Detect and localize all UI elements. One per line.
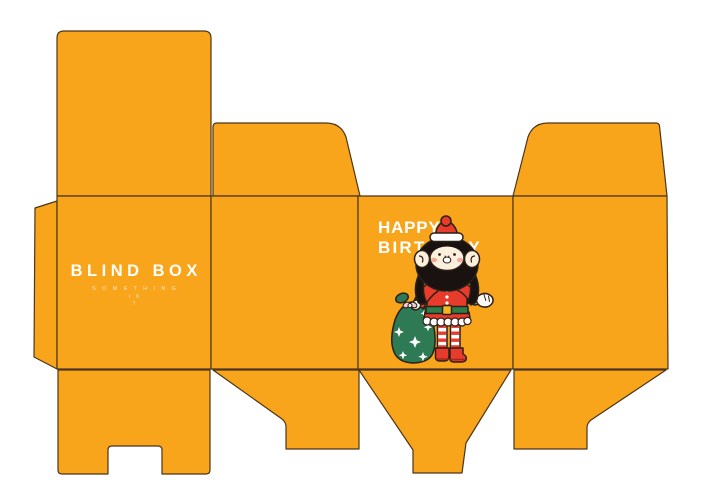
open-hand [476,293,493,307]
hat-brim [430,233,463,242]
belt-buckle [443,306,452,315]
ear-right [465,251,480,268]
dieline-canvas: BLIND BOX S O M E T H I N G I N ? HAPPY … [0,0,707,500]
boots [435,348,466,362]
santa-hat [430,216,463,242]
ear-left [415,251,430,268]
hat-pompom [441,216,451,226]
santa-girl-illustration [0,0,707,500]
